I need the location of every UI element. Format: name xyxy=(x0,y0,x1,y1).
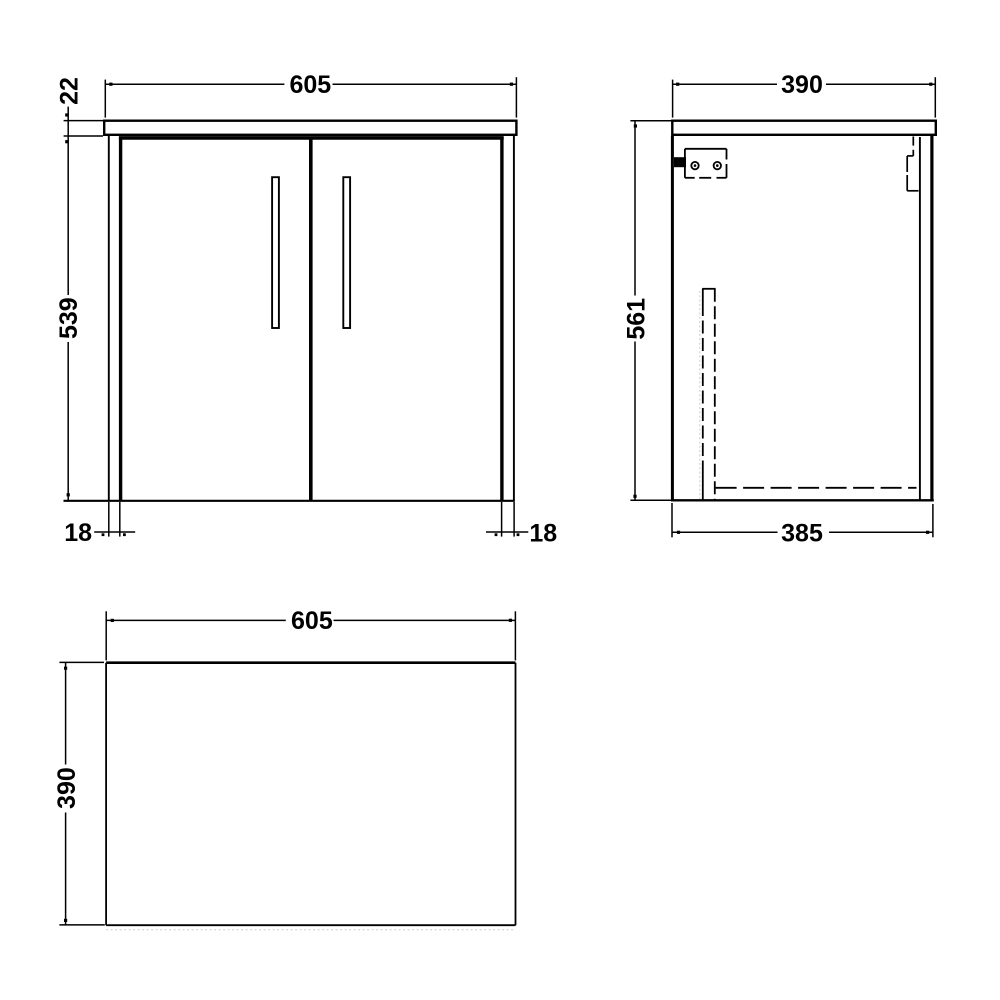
svg-text:22: 22 xyxy=(55,77,83,105)
svg-text:18: 18 xyxy=(64,519,92,547)
svg-text:561: 561 xyxy=(623,298,651,340)
svg-text:390: 390 xyxy=(781,71,823,99)
svg-text:605: 605 xyxy=(289,71,331,99)
svg-text:539: 539 xyxy=(55,297,83,339)
svg-text:390: 390 xyxy=(53,767,81,809)
svg-text:605: 605 xyxy=(291,607,333,635)
svg-text:385: 385 xyxy=(781,520,823,548)
svg-text:18: 18 xyxy=(529,519,557,547)
